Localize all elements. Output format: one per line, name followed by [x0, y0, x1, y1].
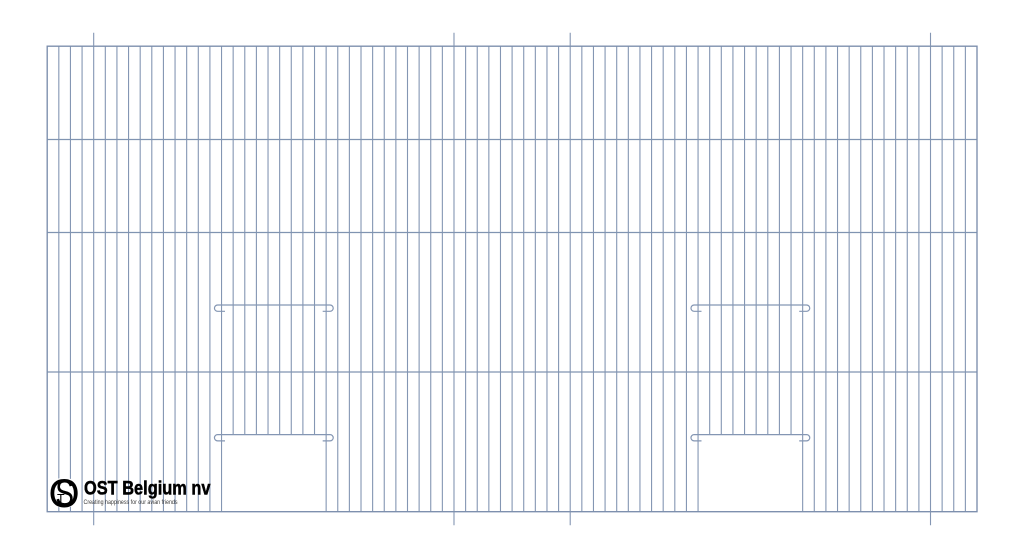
svg-text:Creating happiness for our avi: Creating happiness for our avian friends [84, 500, 178, 506]
svg-text:T: T [57, 492, 65, 506]
svg-text:OST Belgium nv: OST Belgium nv [84, 479, 211, 500]
